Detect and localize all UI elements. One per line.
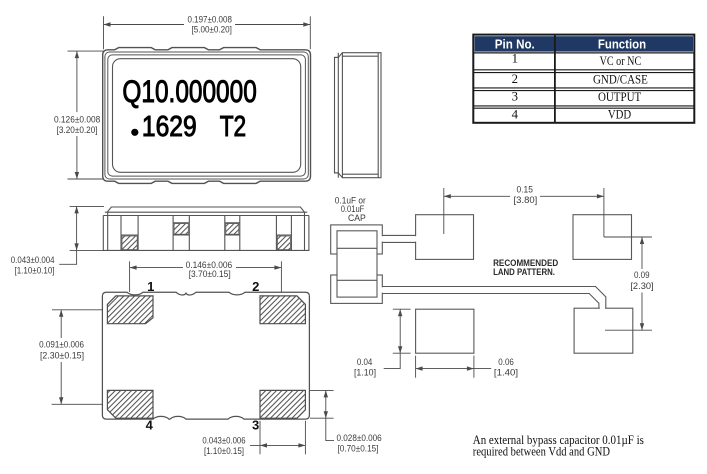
svg-text:Function: Function (598, 36, 646, 51)
svg-text:4: 4 (512, 107, 519, 121)
svg-text:OUTPUT: OUTPUT (598, 90, 641, 104)
svg-text:0.028±0.006: 0.028±0.006 (337, 433, 382, 443)
svg-text:0.091±0.006: 0.091±0.006 (39, 340, 84, 350)
svg-text:Pin No.: Pin No. (495, 36, 535, 51)
svg-text:[0.70±0.15]: [0.70±0.15] (338, 444, 379, 454)
svg-text:[2.30±0.15]: [2.30±0.15] (40, 351, 84, 361)
svg-text:required between Vdd and GND: required between Vdd and GND (473, 444, 610, 459)
svg-text:[1.10±0.15]: [1.10±0.15] (204, 446, 244, 456)
svg-text:0.06: 0.06 (498, 357, 514, 367)
svg-text:[2.30]: [2.30] (630, 281, 653, 291)
svg-text:[1.10]: [1.10] (354, 368, 376, 378)
svg-text:4: 4 (146, 418, 154, 433)
svg-text:[3.80]: [3.80] (514, 195, 538, 205)
svg-text:0.043±0.004: 0.043±0.004 (11, 255, 55, 265)
svg-text:1629: 1629 (142, 111, 197, 143)
svg-text:T2: T2 (220, 111, 247, 143)
svg-text:0.197±0.008: 0.197±0.008 (188, 15, 232, 25)
svg-text:VC or NC: VC or NC (600, 54, 642, 68)
svg-text:1: 1 (512, 52, 518, 66)
svg-text:VDD: VDD (608, 107, 631, 121)
svg-text:[1.40]: [1.40] (494, 368, 518, 378)
svg-text:[5.00±0.20]: [5.00±0.20] (192, 25, 232, 35)
svg-text:GND/CASE: GND/CASE (593, 73, 648, 87)
svg-text:LAND PATTERN.: LAND PATTERN. (493, 267, 555, 277)
svg-text:2: 2 (512, 72, 518, 86)
svg-text:0.043±0.006: 0.043±0.006 (202, 436, 245, 446)
svg-text:0.09: 0.09 (634, 270, 650, 280)
svg-text:[3.20±0.20]: [3.20±0.20] (57, 125, 98, 135)
svg-text:[3.70±0.15]: [3.70±0.15] (189, 269, 231, 279)
svg-text:[1.10±0.10]: [1.10±0.10] (15, 265, 55, 275)
svg-text:0.04: 0.04 (357, 357, 373, 367)
svg-text:3: 3 (252, 418, 259, 433)
svg-text:CAP: CAP (348, 213, 366, 223)
svg-text:0.126±0.008: 0.126±0.008 (54, 115, 100, 125)
svg-text:0.15: 0.15 (517, 184, 533, 194)
svg-text:Q10.000000: Q10.000000 (122, 73, 256, 109)
svg-text:3: 3 (512, 89, 518, 103)
